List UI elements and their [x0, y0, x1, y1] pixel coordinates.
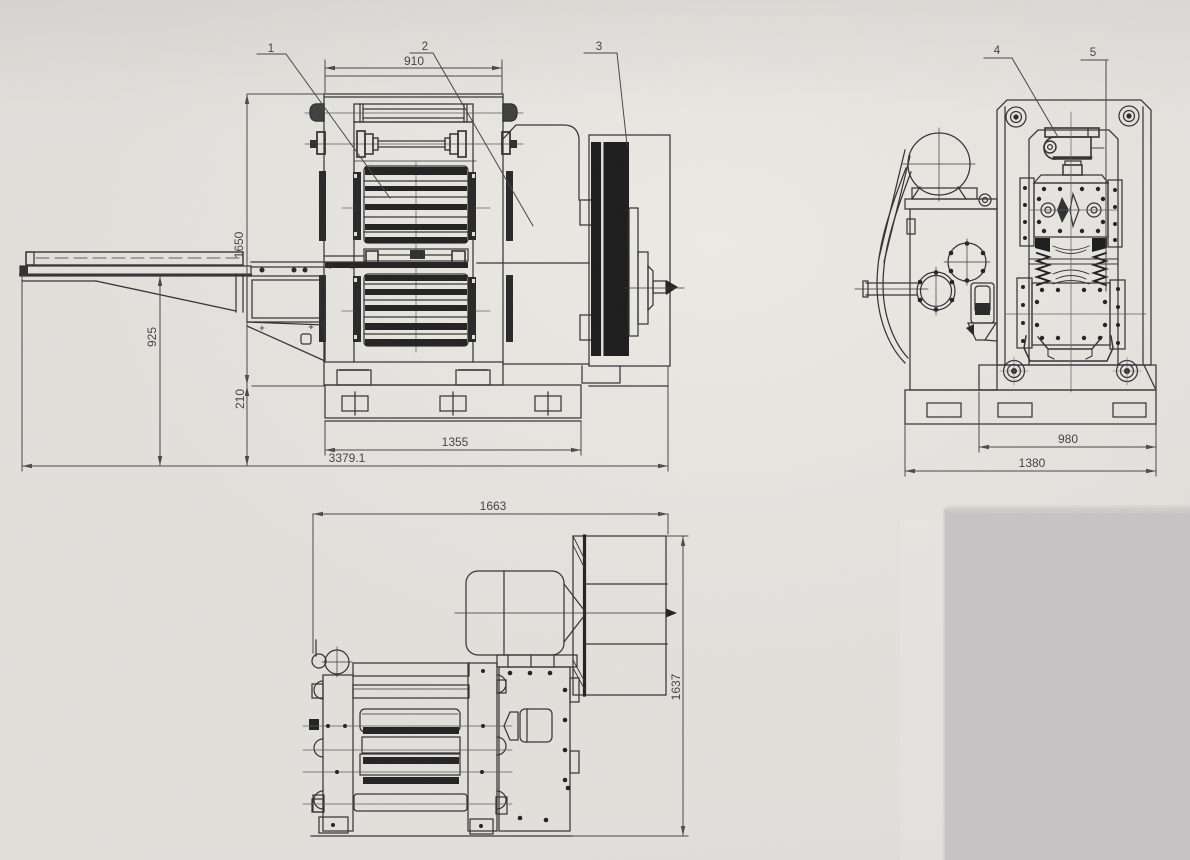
svg-text:5: 5 — [1090, 47, 1096, 59]
svg-text:3379.1: 3379.1 — [329, 451, 366, 465]
svg-text:2: 2 — [422, 41, 428, 53]
svg-text:3: 3 — [596, 41, 602, 53]
svg-text:980: 980 — [1058, 432, 1078, 446]
svg-text:1380: 1380 — [1019, 456, 1046, 470]
svg-text:925: 925 — [145, 327, 159, 347]
svg-text:1650: 1650 — [232, 231, 246, 258]
svg-text:1663: 1663 — [480, 499, 507, 513]
svg-text:210: 210 — [233, 389, 247, 409]
svg-text:1355: 1355 — [442, 435, 469, 449]
svg-text:1: 1 — [268, 43, 274, 55]
svg-text:1637: 1637 — [669, 673, 683, 700]
svg-text:910: 910 — [404, 54, 424, 68]
svg-text:4: 4 — [994, 45, 1001, 57]
